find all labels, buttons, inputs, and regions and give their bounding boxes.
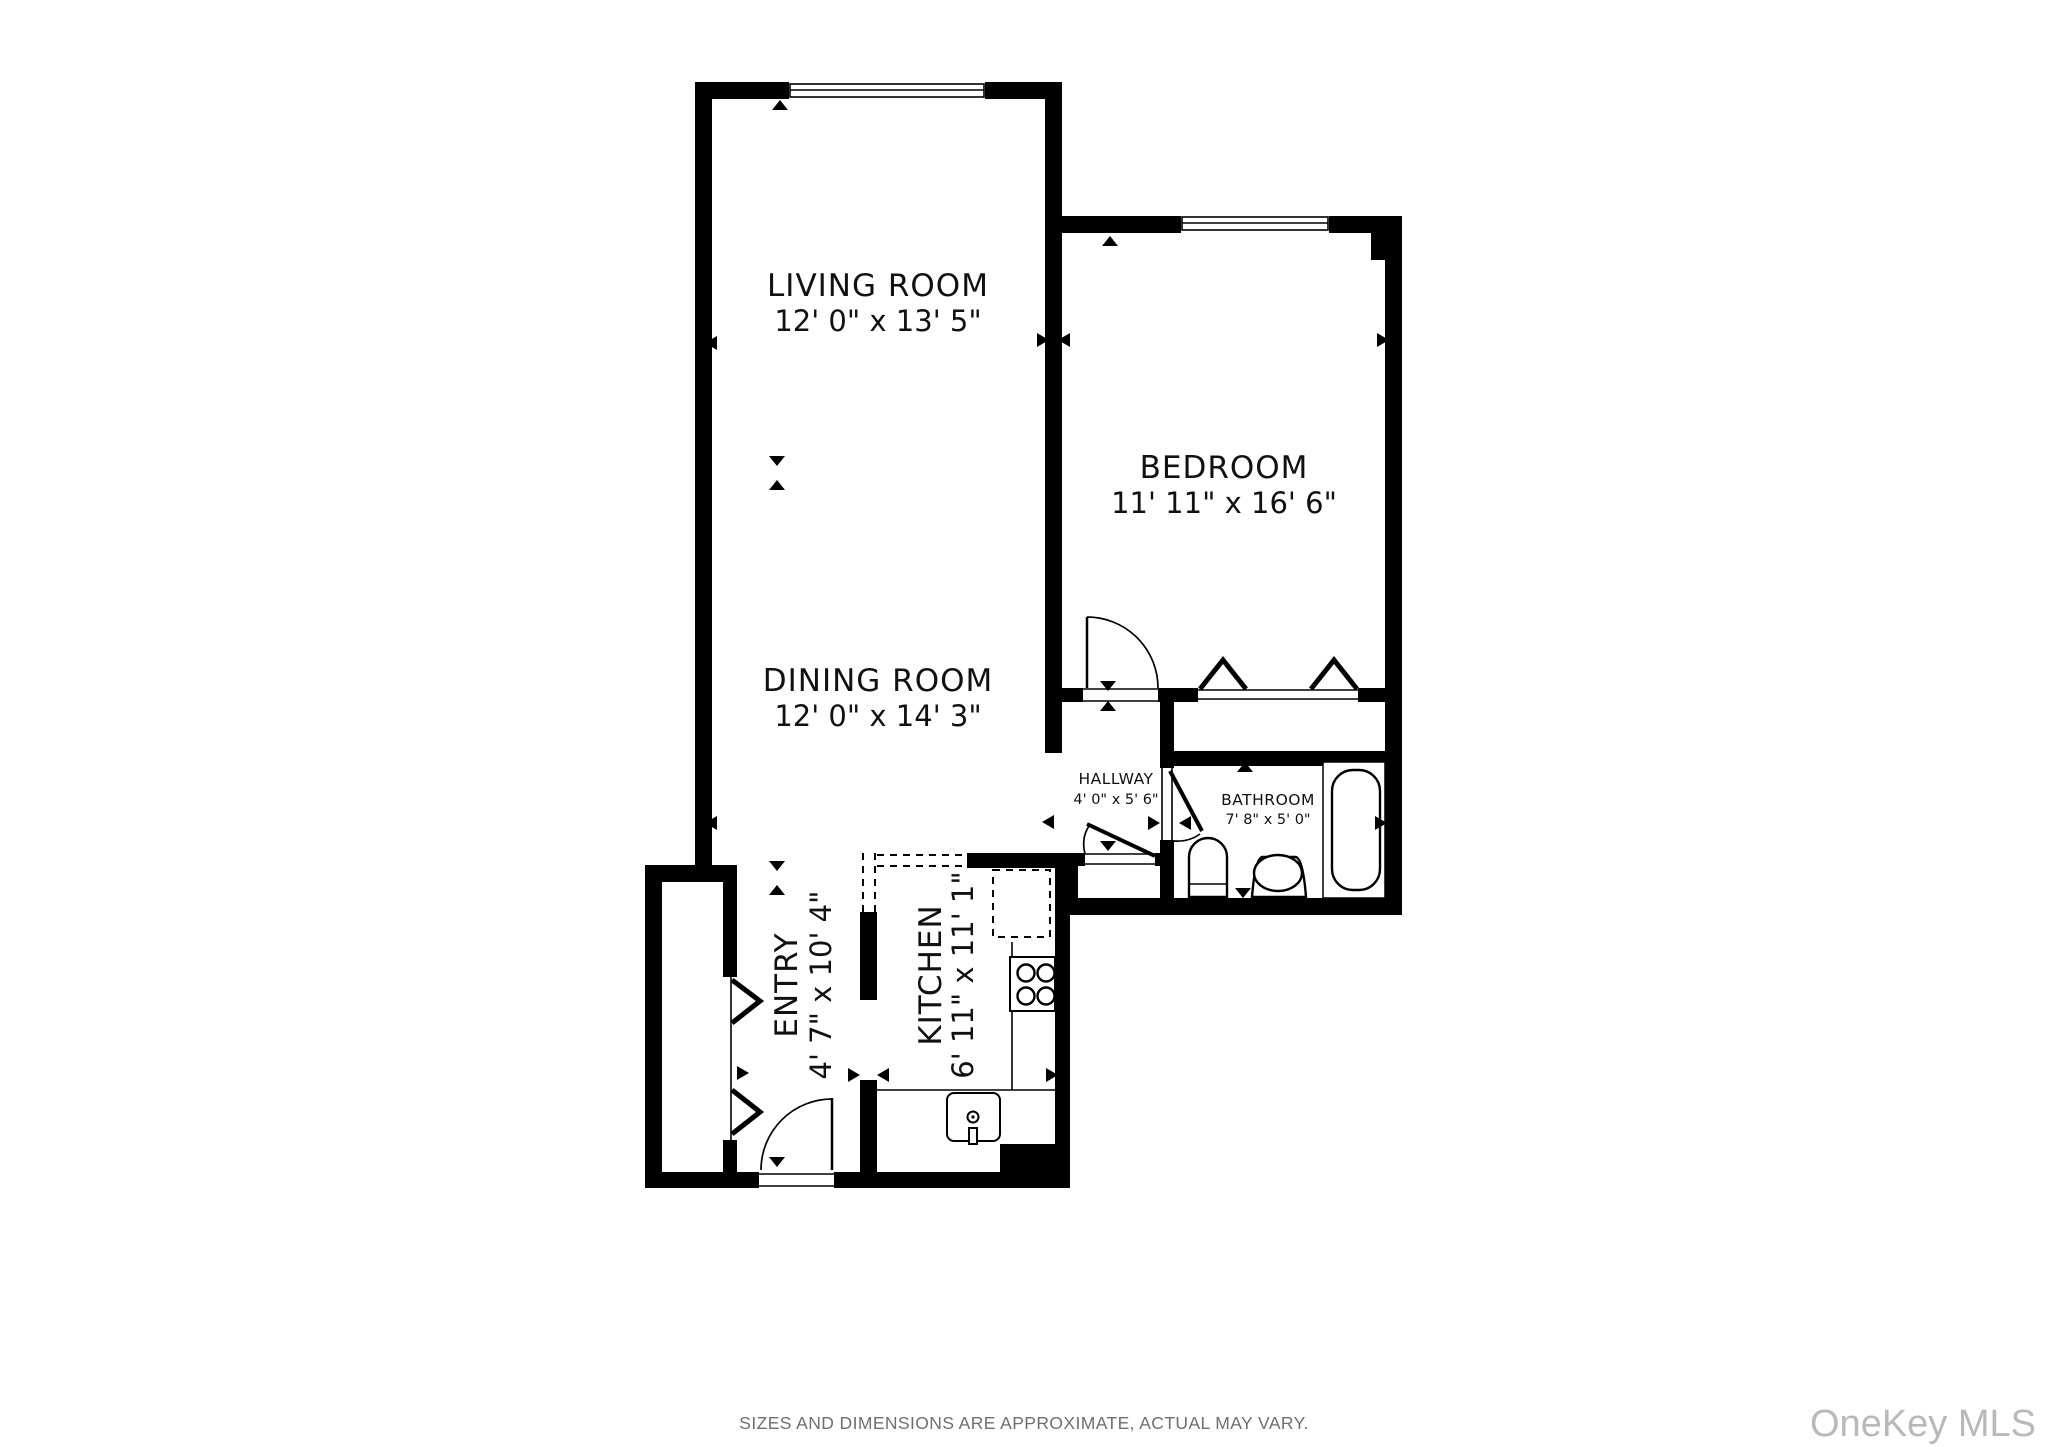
bathroom-fixtures — [1189, 762, 1385, 898]
wall-south-entry-kitchen — [645, 1172, 1070, 1188]
room-dims-bathroom: 7' 8" x 5' 0" — [1225, 812, 1310, 828]
entry-door-opening — [759, 1170, 834, 1190]
wall-entry-closet-face-top — [723, 882, 737, 977]
stove-icon — [1010, 957, 1055, 1011]
wall-divider-living-bedroom — [1045, 82, 1062, 753]
kitchen-sink-icon — [947, 1093, 1000, 1144]
wall-south-hallway-b — [1155, 853, 1165, 866]
bathtub-icon — [1323, 762, 1385, 898]
marker-left-kitchen-wall-e — [877, 1068, 889, 1082]
room-label-hallway: HALLWAY — [1079, 770, 1154, 788]
bifold-door-icon — [732, 980, 760, 1023]
wall-east-bedroom — [1385, 233, 1402, 913]
room-label-living: LIVING ROOM — [767, 268, 989, 304]
marker-up-living-window — [772, 100, 788, 110]
room-label-entry: ENTRY — [769, 932, 805, 1037]
wall-south-bathroom — [1068, 898, 1402, 915]
room-dims-bedroom: 11' 11" x 16' 6" — [1111, 486, 1337, 520]
bifold-door-icon — [1311, 660, 1357, 689]
walls — [645, 82, 1402, 1188]
marker-up-dining-entry — [769, 885, 785, 895]
watermark: OneKey MLS — [1810, 1403, 2036, 1445]
bifold-door-icon — [732, 1090, 760, 1134]
marker-left-bathdoor-wall — [1179, 816, 1191, 830]
toilet-icon — [1252, 855, 1306, 897]
wall-east-kitchen — [1055, 868, 1070, 1144]
marker-down-living-dining — [769, 456, 785, 466]
window-bedroom — [1181, 214, 1329, 235]
bedroom-door-opening — [1083, 684, 1158, 706]
room-label-bathroom: BATHROOM — [1221, 791, 1315, 809]
bedroom-closet — [1198, 660, 1358, 702]
wall-west — [695, 82, 712, 882]
marker-down-dining-entry — [769, 861, 785, 871]
wall-hallway-bathroom-lower — [1160, 838, 1174, 900]
wall-south-bedroom-a — [1062, 688, 1083, 702]
room-dims-hallway: 4' 0" x 5' 6" — [1073, 792, 1158, 808]
wall-south-hallway-a — [1078, 853, 1085, 866]
room-dims-kitchen: 6' 11" x 11' 1" — [946, 871, 980, 1078]
marker-right-kitchen-wall-w — [848, 1068, 860, 1082]
floorplan-page: LIVING ROOM 12' 0" x 13' 5" BEDROOM 11' … — [0, 0, 2048, 1447]
disclaimer-text: SIZES AND DIMENSIONS ARE APPROXIMATE, AC… — [739, 1413, 1308, 1433]
room-label-bedroom: BEDROOM — [1140, 450, 1309, 486]
wall-notch-bedroom-ne — [1371, 233, 1385, 260]
marker-up-living-dining — [769, 480, 785, 490]
floorplan-drawing: LIVING ROOM 12' 0" x 13' 5" BEDROOM 11' … — [0, 0, 2048, 1447]
marker-down-hallway-door — [1100, 841, 1116, 851]
wall-entry-kitchen-a — [860, 912, 877, 1000]
wall-north-kitchen — [967, 853, 1078, 868]
room-label-dining: DINING ROOM — [763, 663, 994, 699]
marker-up-bedroom-window — [1102, 236, 1118, 246]
room-dims-living: 12' 0" x 13' 5" — [774, 304, 981, 338]
wall-entry-kitchen-b — [860, 1080, 877, 1172]
marker-down-bathroom — [1235, 888, 1251, 898]
bedroom-door-swing — [1087, 617, 1158, 688]
wall-entry-closet-west — [645, 865, 662, 1188]
wall-south-bedroom-c — [1358, 688, 1402, 702]
hallway-door-opening — [1085, 851, 1155, 867]
marker-left-divider-bottom — [1042, 815, 1054, 829]
wall-entry-closet-face-bottom — [723, 1140, 737, 1172]
window-living-room — [789, 80, 985, 101]
marker-right-entry-closet — [737, 1066, 749, 1080]
room-label-kitchen: KITCHEN — [913, 904, 949, 1045]
bathroom-sink-icon — [1189, 838, 1227, 897]
entry-closet — [723, 977, 760, 1140]
bifold-door-icon — [1200, 660, 1246, 689]
room-dims-entry: 4' 7" x 10' 4" — [804, 891, 838, 1080]
marker-down-entry-door — [769, 1157, 785, 1167]
room-dims-dining: 12' 0" x 14' 3" — [774, 699, 981, 733]
